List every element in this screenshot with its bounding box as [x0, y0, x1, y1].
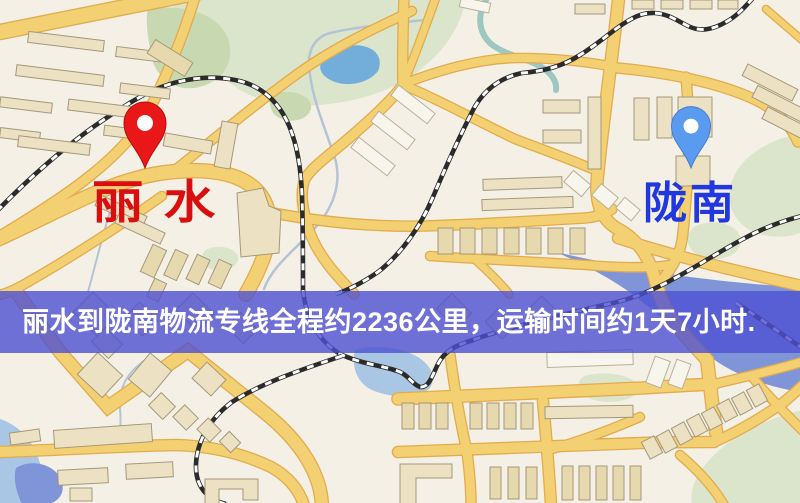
map-screenshot: 丽水 陇南 丽水到陇南物流专线全程约2236公里，运输时间约1天7小时.: [0, 0, 800, 503]
info-banner: 丽水到陇南物流专线全程约2236公里，运输时间约1天7小时.: [0, 291, 800, 353]
map-image: [0, 0, 800, 503]
origin-city-label: 丽水: [92, 179, 235, 225]
destination-city-label: 陇南: [643, 182, 737, 226]
banner-text: 丽水到陇南物流专线全程约2236公里，运输时间约1天7小时.: [0, 291, 800, 353]
